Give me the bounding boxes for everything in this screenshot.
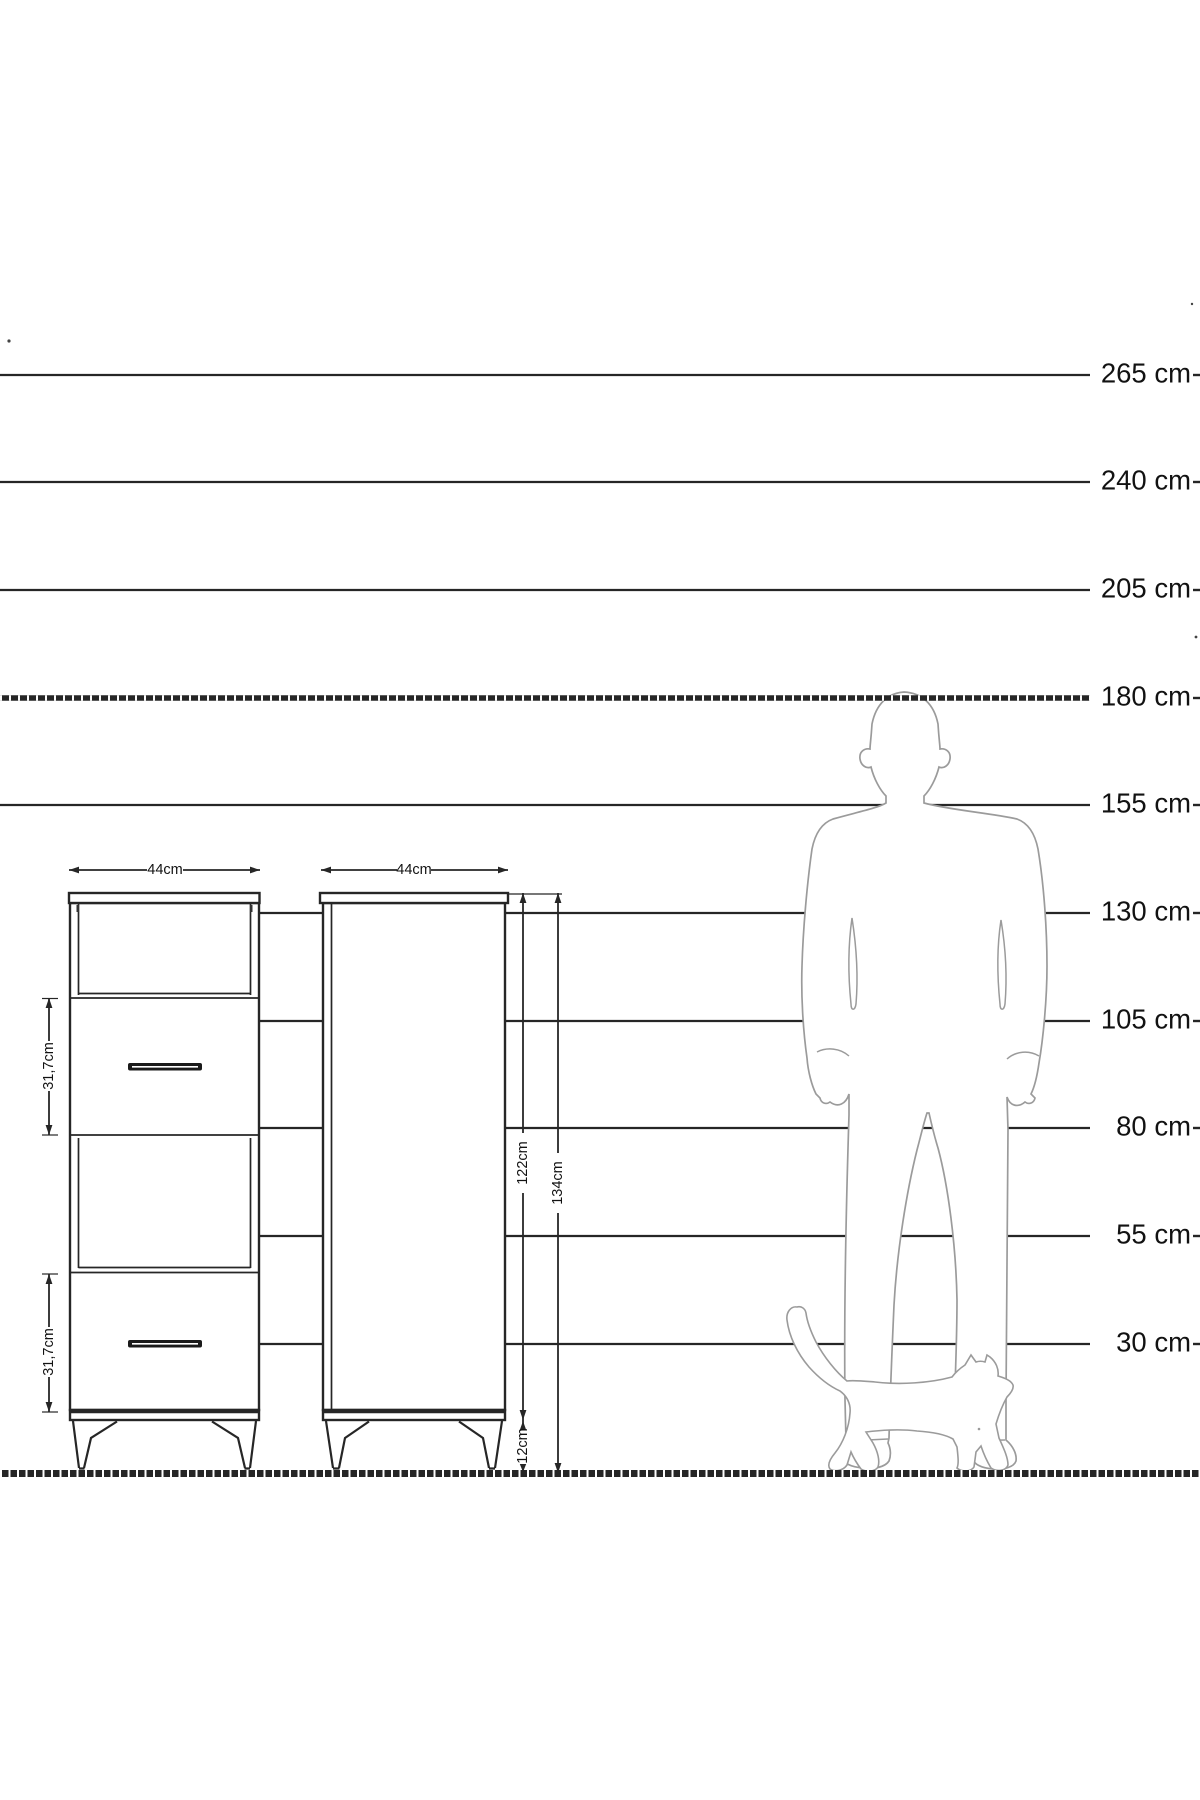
dim-cabinet2-width: 44cm bbox=[321, 862, 508, 878]
arrowhead-left bbox=[321, 867, 331, 874]
cabinet1-body bbox=[70, 903, 259, 1410]
silhouettes bbox=[787, 692, 1047, 1471]
cabinet2-left-leg bbox=[326, 1421, 369, 1469]
arrowhead-left bbox=[69, 867, 79, 874]
dim-total-height: 134cm bbox=[550, 893, 566, 1473]
dim-leg-height: 12cm bbox=[515, 1420, 531, 1473]
dim-label-total-height: 134cm bbox=[550, 1161, 566, 1205]
scale-label-105: 105 cm bbox=[1101, 1003, 1191, 1034]
dim-drawer2-height: 31,7cm bbox=[41, 1274, 58, 1412]
dim-label-cabinet1-width: 44cm bbox=[147, 862, 182, 878]
artifact-dot bbox=[7, 339, 10, 342]
dim-label-drawer1-height: 31,7cm bbox=[41, 1042, 57, 1090]
cabinet2-top-panel bbox=[320, 893, 508, 903]
dim-label-leg-height: 12cm bbox=[515, 1428, 531, 1463]
arrowhead-up bbox=[46, 1274, 53, 1284]
print-artifacts bbox=[7, 303, 1197, 639]
scale-label-55: 55 cm bbox=[1116, 1218, 1191, 1249]
cabinet-door bbox=[320, 893, 508, 1469]
dim-label-cabinet2-width: 44cm bbox=[396, 862, 431, 878]
arrowhead-right bbox=[498, 867, 508, 874]
arrowhead-down bbox=[46, 1402, 53, 1412]
dim-drawer1-height: 31,7cm bbox=[41, 998, 58, 1135]
artifact-dot bbox=[1191, 303, 1193, 305]
arrowhead-up bbox=[46, 998, 53, 1008]
scale-labels: 265 cm 240 cm 205 cm 180 cm 155 cm 130 c… bbox=[1101, 357, 1191, 1357]
cabinet1-hinge-right bbox=[250, 905, 253, 912]
dimension-diagram: 44cm 44cm 31,7cm 31,7cm bbox=[0, 0, 1200, 1800]
cabinet1-hinge-left bbox=[77, 905, 80, 912]
dim-label-drawer2-height: 31,7cm bbox=[41, 1328, 57, 1376]
cat-fur-dot bbox=[978, 1428, 981, 1431]
cabinet1-right-leg bbox=[212, 1421, 256, 1469]
cabinet1-legs bbox=[73, 1421, 256, 1469]
artifact-dot bbox=[1195, 636, 1198, 639]
scale-label-265: 265 cm bbox=[1101, 357, 1191, 388]
arrowhead-right bbox=[250, 867, 260, 874]
cabinet2-body bbox=[323, 903, 505, 1410]
dim-cabinet1-width: 44cm bbox=[69, 862, 260, 878]
cabinet1-top-panel bbox=[69, 893, 260, 903]
arrowhead-down bbox=[46, 1125, 53, 1135]
scale-label-80: 80 cm bbox=[1116, 1110, 1191, 1141]
scale-label-30: 30 cm bbox=[1116, 1326, 1191, 1357]
scale-label-205: 205 cm bbox=[1101, 572, 1191, 603]
scale-label-240: 240 cm bbox=[1101, 464, 1191, 495]
diagram-canvas: 44cm 44cm 31,7cm 31,7cm bbox=[0, 0, 1200, 1800]
cabinet1-left-leg bbox=[73, 1421, 117, 1469]
man-silhouette bbox=[802, 692, 1047, 1469]
dim-body-height: 122cm bbox=[507, 893, 562, 1420]
cabinet2-legs bbox=[326, 1421, 502, 1469]
cabinet-drawers bbox=[69, 893, 260, 1469]
scale-label-180: 180 cm bbox=[1101, 680, 1191, 711]
dim-label-body-height: 122cm bbox=[515, 1141, 531, 1185]
arrowhead-down bbox=[520, 1410, 527, 1420]
cabinet2-right-leg bbox=[459, 1421, 502, 1469]
scale-label-155: 155 cm bbox=[1101, 787, 1191, 818]
scale-label-130: 130 cm bbox=[1101, 895, 1191, 926]
